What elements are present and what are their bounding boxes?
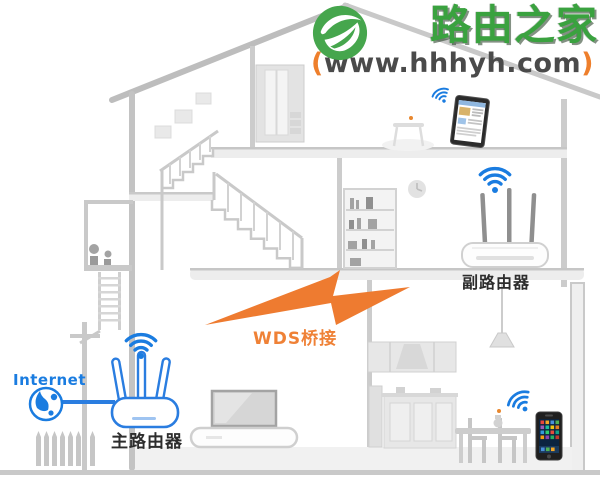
potted-plants	[89, 244, 112, 265]
side-table	[382, 116, 434, 151]
wds-diagram: 路由之家 (www.hhhyh.com) Internet 主路由器 副路由器 …	[0, 0, 600, 481]
secondary-router-device	[462, 188, 548, 267]
wifi-signal-icon	[480, 169, 509, 193]
brand-text: 路由之家	[430, 4, 598, 47]
internet-line	[60, 400, 115, 404]
bookshelf	[344, 189, 396, 268]
smartphone-device	[536, 412, 562, 460]
site-logo: 路由之家 (www.hhhyh.com)	[311, 4, 598, 79]
tv	[212, 391, 276, 429]
kitchen-cabinets	[368, 342, 458, 448]
paren-close: )	[581, 48, 594, 79]
main-router-device	[112, 352, 178, 427]
wardrobe	[256, 65, 304, 142]
wall-clock-icon	[408, 180, 426, 198]
internet-label: Internet	[13, 371, 86, 389]
wifi-signal-icon	[506, 388, 537, 417]
leaf-e-logo-icon	[311, 4, 369, 62]
wifi-signal-icon	[431, 86, 452, 106]
main-router-label: 主路由器	[111, 427, 183, 452]
tv-stand	[191, 428, 297, 447]
utility-pole	[70, 322, 100, 470]
internet-globe-icon	[30, 388, 62, 420]
tablet-device	[450, 95, 490, 148]
wds-bridge-label: WDS桥接	[253, 324, 337, 349]
balcony	[84, 200, 133, 271]
secondary-router-label: 副路由器	[462, 269, 530, 293]
wall-pictures	[155, 93, 211, 138]
